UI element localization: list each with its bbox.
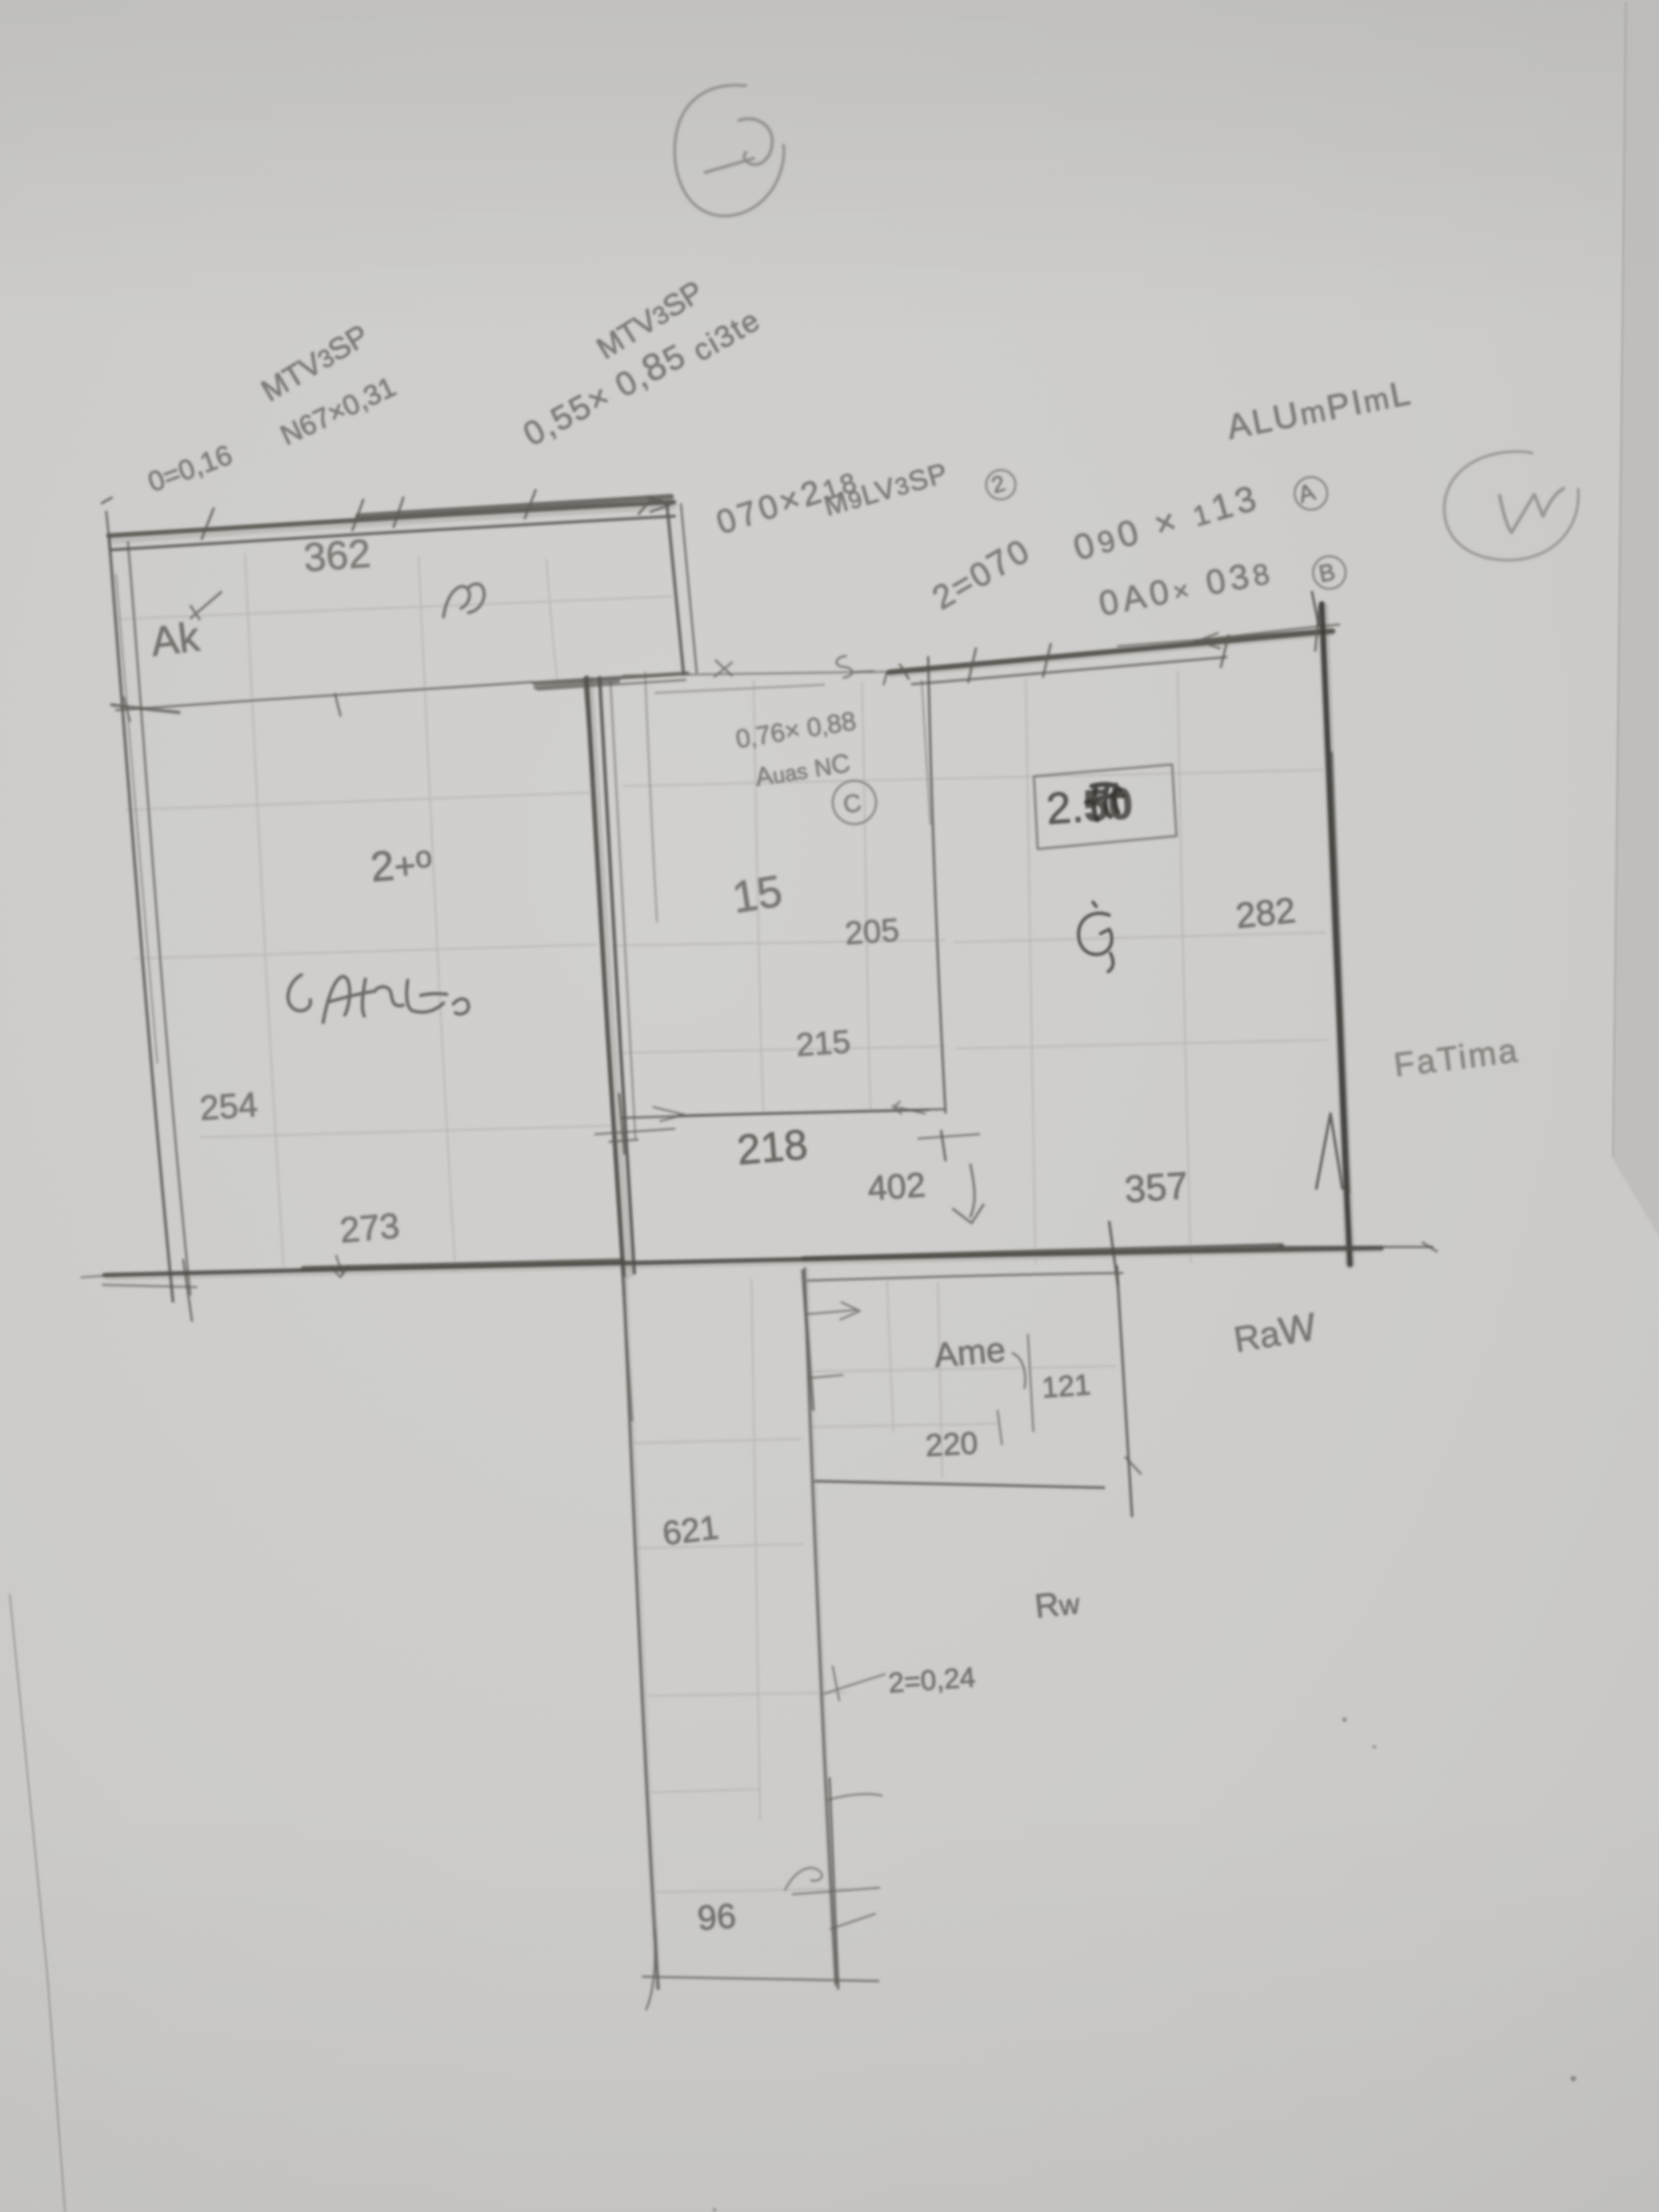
svg-text:357: 357	[1123, 1164, 1189, 1211]
svg-text:402: 402	[866, 1165, 927, 1208]
svg-text:282: 282	[1234, 890, 1297, 936]
svg-text:Rw: Rw	[1033, 1584, 1082, 1625]
svg-text:220: 220	[924, 1425, 979, 1463]
svg-text:254: 254	[198, 1085, 259, 1128]
svg-text:205: 205	[844, 911, 901, 951]
svg-text:Ame: Ame	[933, 1330, 1007, 1375]
svg-text:2=0,24: 2=0,24	[888, 1662, 976, 1699]
svg-text:273: 273	[338, 1205, 401, 1250]
svg-text:621: 621	[660, 1509, 721, 1553]
svg-text:121: 121	[1041, 1368, 1092, 1404]
svg-text:215: 215	[795, 1023, 852, 1063]
svg-text:96: 96	[696, 1896, 737, 1938]
svg-text:218: 218	[735, 1120, 809, 1174]
svg-text:Ak: Ak	[149, 614, 202, 665]
svg-text:15: 15	[729, 866, 786, 923]
svg-text:362: 362	[302, 531, 372, 580]
svg-text:2.50: 2.50	[1045, 779, 1135, 834]
